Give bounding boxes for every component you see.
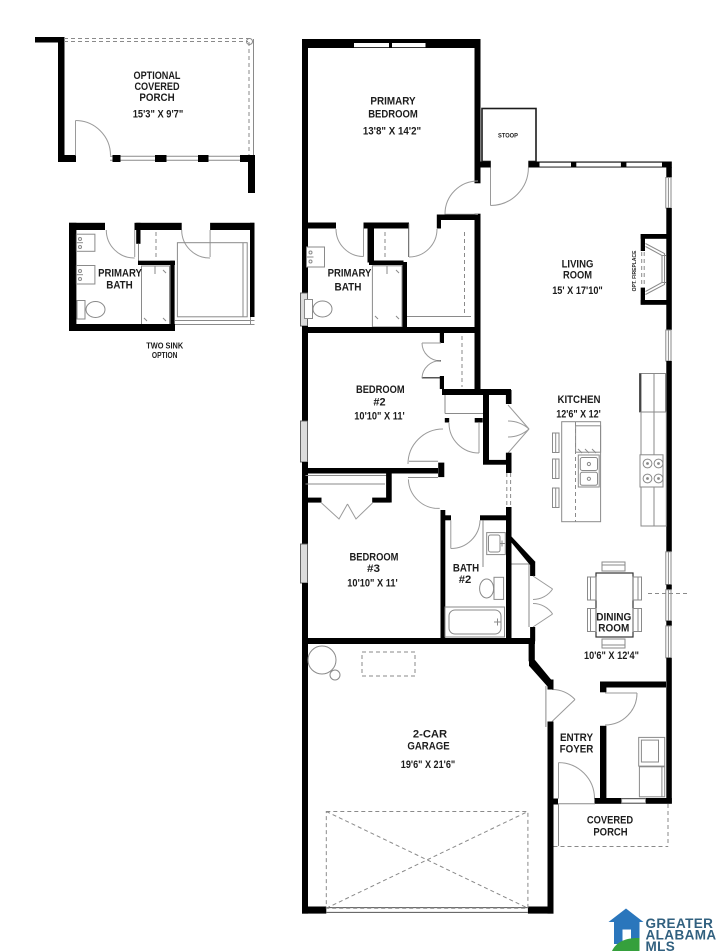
svg-text:KITCHEN: KITCHEN <box>557 394 600 406</box>
svg-text:ROOM: ROOM <box>563 270 592 282</box>
svg-text:2-CAR: 2-CAR <box>413 729 447 741</box>
svg-text:15'3" X 9'7": 15'3" X 9'7" <box>133 109 184 121</box>
svg-text:GARAGE: GARAGE <box>407 741 449 753</box>
svg-text:15' X 17'10": 15' X 17'10" <box>552 285 603 297</box>
svg-text:12'6" X 12': 12'6" X 12' <box>556 409 601 421</box>
svg-text:PRIMARY: PRIMARY <box>328 267 372 279</box>
svg-text:COVERED: COVERED <box>134 81 179 93</box>
svg-text:10'10" X 11': 10'10" X 11' <box>354 411 405 423</box>
svg-text:#2: #2 <box>373 397 385 409</box>
svg-text:BEDROOM: BEDROOM <box>356 384 405 396</box>
svg-text:OPTION: OPTION <box>152 351 178 360</box>
svg-text:#2: #2 <box>459 574 472 586</box>
svg-text:OPTIONAL: OPTIONAL <box>134 70 181 82</box>
svg-text:BATH: BATH <box>106 280 133 292</box>
svg-text:PORCH: PORCH <box>139 92 174 104</box>
svg-text:ENTRY: ENTRY <box>560 732 594 744</box>
svg-text:TWO SINK: TWO SINK <box>146 341 183 350</box>
svg-text:19'6" X 21'6": 19'6" X 21'6" <box>401 759 455 771</box>
svg-text:PRIMARY: PRIMARY <box>370 96 416 108</box>
svg-text:OPT. FIREPLACE: OPT. FIREPLACE <box>632 250 638 292</box>
svg-text:MLS: MLS <box>646 939 676 951</box>
svg-text:STOOP: STOOP <box>498 133 518 139</box>
svg-text:BATH: BATH <box>453 563 479 575</box>
svg-text:COVERED: COVERED <box>587 815 633 827</box>
svg-text:PRIMARY: PRIMARY <box>98 267 142 279</box>
svg-text:#3: #3 <box>367 563 380 575</box>
svg-text:10'6" X 12'4": 10'6" X 12'4" <box>584 650 639 662</box>
svg-text:FOYER: FOYER <box>560 744 594 756</box>
svg-text:PORCH: PORCH <box>593 827 627 839</box>
svg-text:BATH: BATH <box>335 282 362 294</box>
svg-text:BEDROOM: BEDROOM <box>368 109 418 121</box>
svg-text:BEDROOM: BEDROOM <box>350 552 399 564</box>
svg-text:10'10" X 11': 10'10" X 11' <box>347 578 398 590</box>
svg-text:13'8" X 14'2": 13'8" X 14'2" <box>363 126 421 138</box>
svg-text:ROOM: ROOM <box>598 623 629 635</box>
